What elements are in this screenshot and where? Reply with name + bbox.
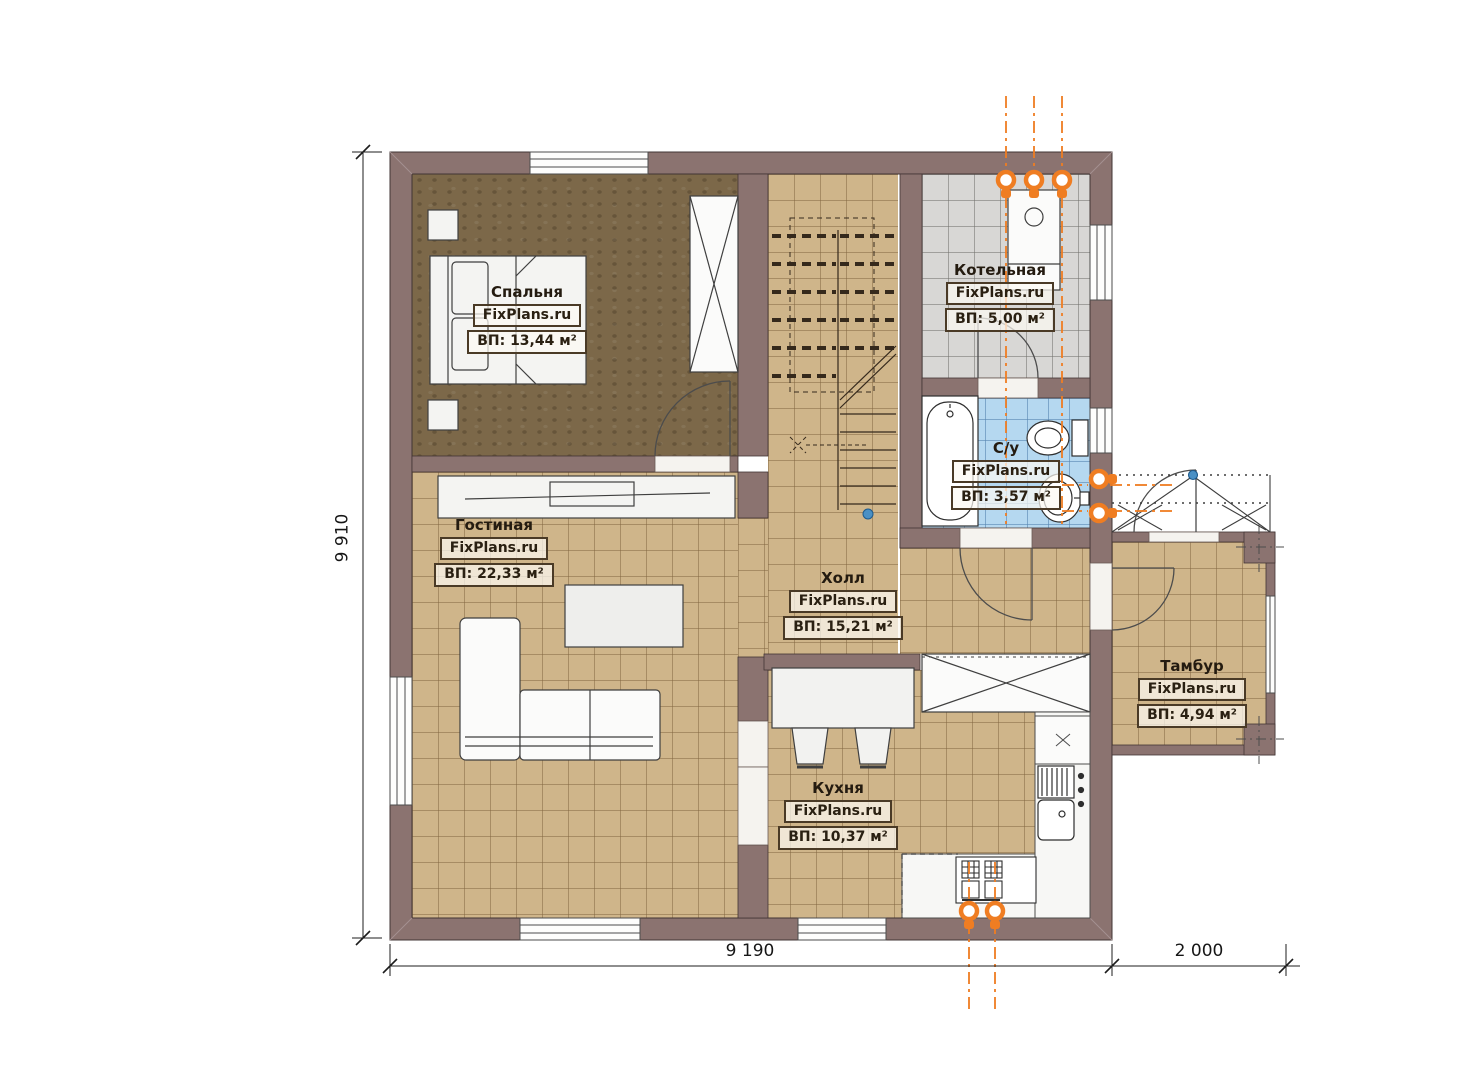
coffee-table xyxy=(565,585,683,647)
door-boiler xyxy=(978,318,1038,378)
door-bedroom xyxy=(655,381,730,456)
window-bottom-living xyxy=(520,918,640,940)
window-bottom-hall xyxy=(798,918,886,940)
wardrobe xyxy=(690,196,738,372)
floor-plan: Спальня FixPlans.ru ВП: 13,44 м² Котельн… xyxy=(0,0,1473,1080)
dimension-left: 9 910 xyxy=(332,514,352,563)
staircase xyxy=(772,218,896,519)
window-right-bathroom xyxy=(1090,408,1112,453)
tv-stand xyxy=(438,476,735,518)
window-right-boiler xyxy=(1090,225,1112,300)
kitchen-appliance-icon xyxy=(1035,716,1090,764)
bathtub xyxy=(922,396,978,526)
porch xyxy=(1112,471,1270,533)
window-left-living xyxy=(390,677,412,805)
plan-linework xyxy=(0,0,1473,1080)
builtin-closet xyxy=(922,654,1090,712)
dimension-bottom-main: 9 190 xyxy=(690,941,810,961)
window-vestibule xyxy=(1266,596,1275,693)
porch-marker xyxy=(1189,471,1198,480)
bed xyxy=(430,256,586,384)
window-top-bedroom xyxy=(530,152,648,174)
door-bathroom xyxy=(960,548,1032,620)
door-vestibule-exterior xyxy=(1134,470,1196,532)
bathroom-sink xyxy=(1039,474,1089,522)
toilet xyxy=(1027,420,1088,456)
dimension-bottom-porch: 2 000 xyxy=(1139,941,1259,961)
stair-start-marker xyxy=(863,509,873,519)
door-entry xyxy=(1112,568,1174,630)
dining-table xyxy=(772,668,914,767)
boiler-unit xyxy=(1008,190,1060,290)
